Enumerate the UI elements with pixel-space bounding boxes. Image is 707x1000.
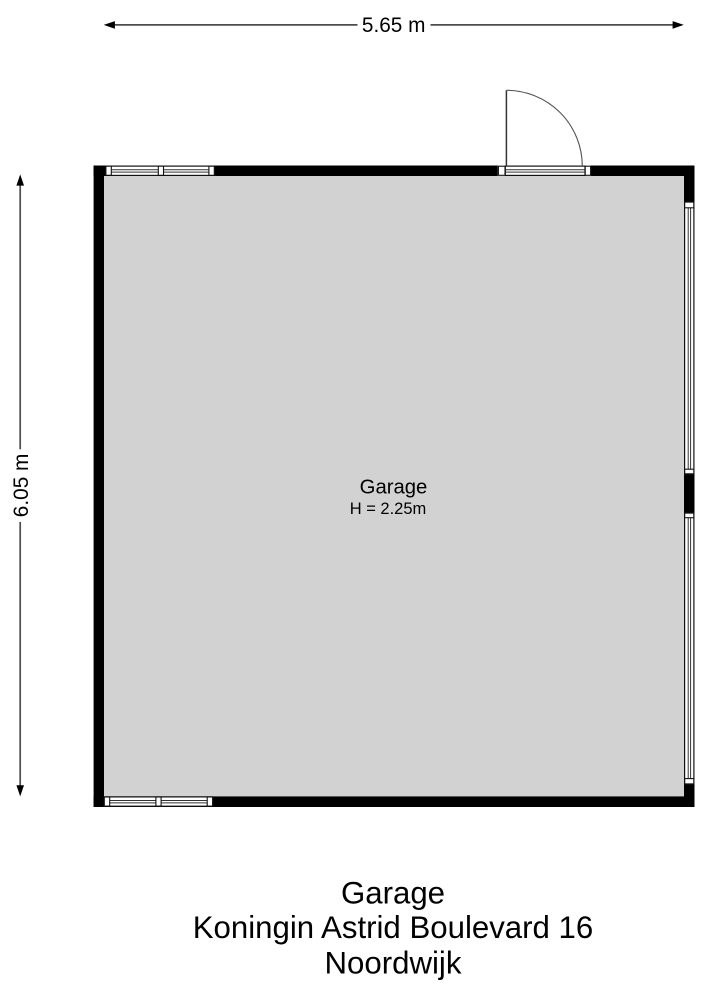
svg-text:5.65 m: 5.65 m [362,14,426,37]
svg-text:Garage: Garage [360,476,428,498]
svg-text:Noordwijk: Noordwijk [325,946,462,981]
svg-text:H = 2.25m: H = 2.25m [350,500,427,518]
svg-text:6.05 m: 6.05 m [10,454,33,518]
svg-text:Garage: Garage [341,875,445,910]
svg-text:Koningin Astrid Boulevard 16: Koningin Astrid Boulevard 16 [193,910,594,945]
